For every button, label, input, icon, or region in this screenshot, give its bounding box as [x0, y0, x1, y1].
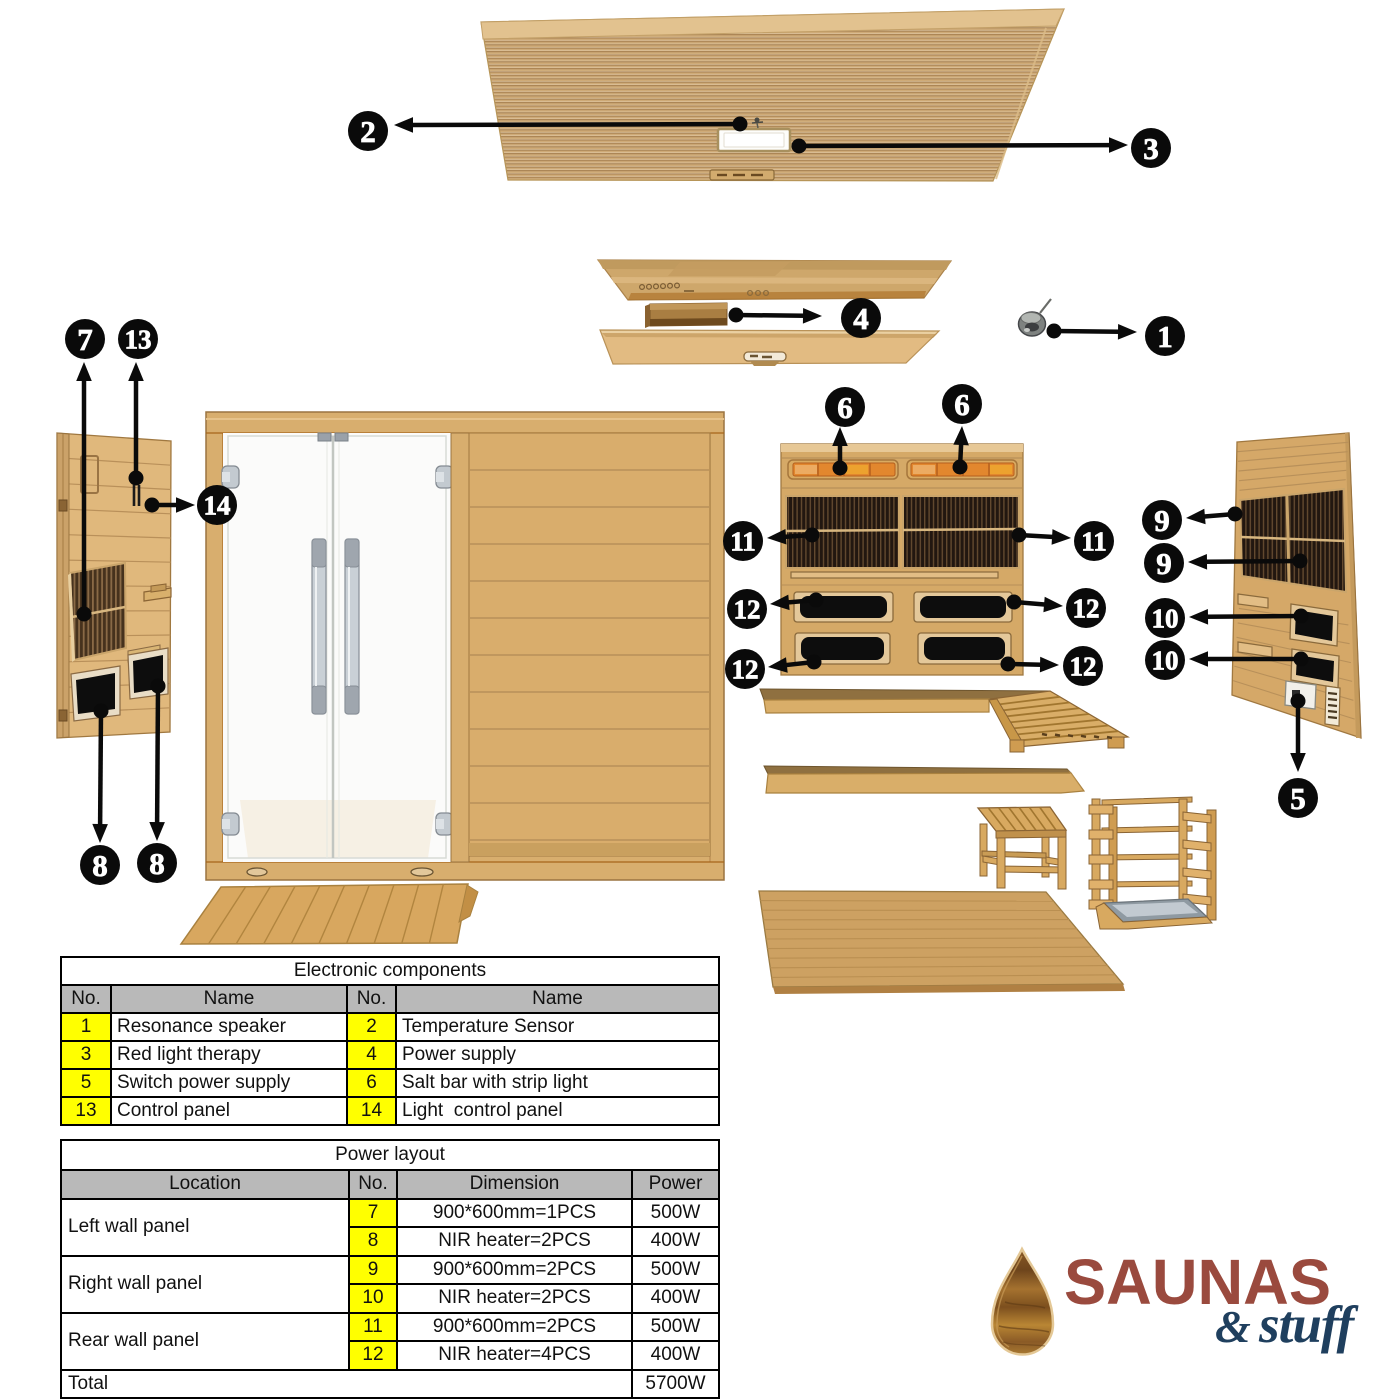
svg-text:13: 13 — [125, 325, 152, 355]
svg-text:3: 3 — [1143, 131, 1159, 166]
svg-text:1: 1 — [1157, 319, 1173, 354]
svg-text:2: 2 — [360, 114, 376, 149]
svg-text:7: 7 — [77, 322, 93, 357]
svg-text:14: 14 — [204, 491, 231, 521]
svg-text:10: 10 — [1152, 646, 1179, 676]
svg-text:8: 8 — [92, 848, 108, 883]
svg-text:9: 9 — [1156, 546, 1172, 581]
svg-text:8: 8 — [149, 846, 165, 881]
svg-text:9: 9 — [1154, 503, 1170, 538]
svg-text:6: 6 — [954, 387, 970, 422]
svg-text:&: & — [1215, 1301, 1251, 1352]
svg-text:11: 11 — [730, 527, 756, 557]
svg-text:11: 11 — [1081, 527, 1107, 557]
svg-text:12: 12 — [734, 595, 761, 625]
svg-text:4: 4 — [853, 301, 869, 336]
svg-text:10: 10 — [1152, 604, 1179, 634]
svg-text:6: 6 — [837, 390, 853, 425]
svg-text:5: 5 — [1290, 781, 1306, 816]
svg-text:stuff: stuff — [1258, 1296, 1360, 1354]
svg-text:12: 12 — [1070, 652, 1097, 682]
svg-text:12: 12 — [1073, 594, 1100, 624]
svg-text:12: 12 — [732, 655, 759, 685]
